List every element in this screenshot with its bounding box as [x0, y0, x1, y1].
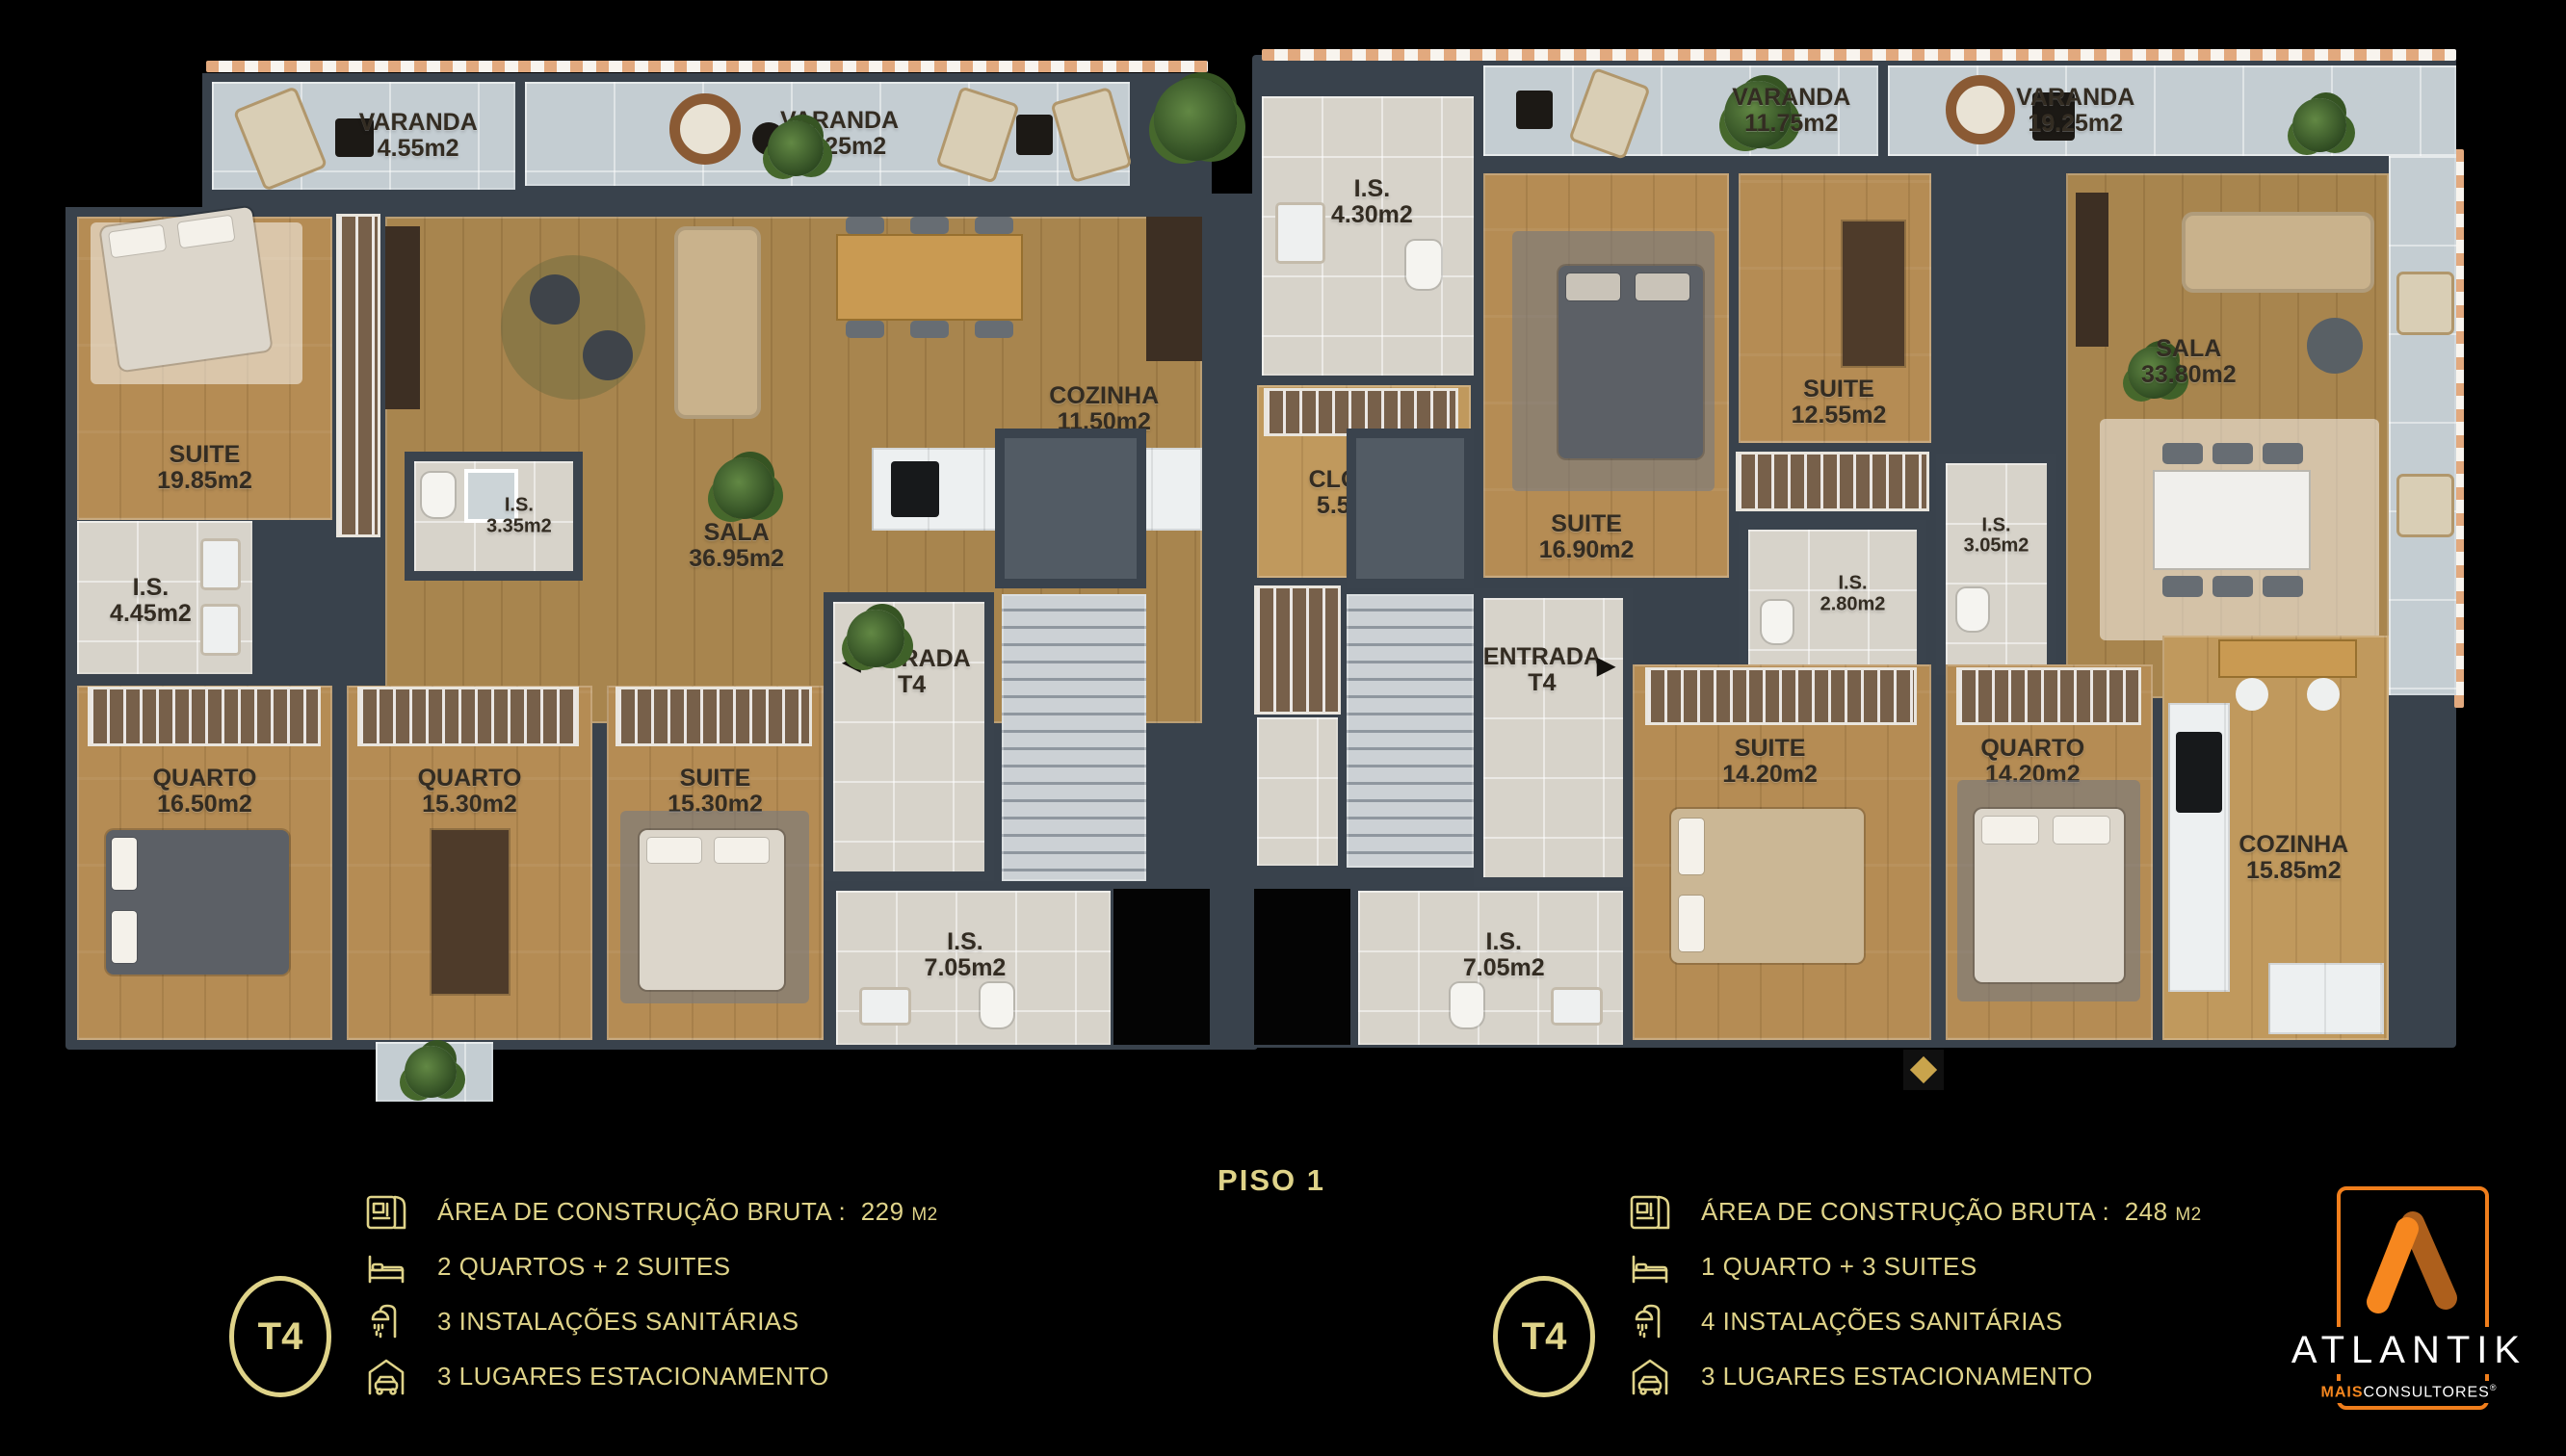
room-entrada-left: ◀ ENTRADA T4: [824, 592, 994, 881]
floorplan-image: VARANDA 4.55m2 VARANDA 11.25m2 SU: [0, 0, 2566, 1456]
tv-sideboard: [385, 226, 420, 409]
dining-chair: [2213, 443, 2253, 464]
room-area: 16.90m2: [1539, 537, 1635, 563]
room-is-280: I.S. 2.80m2: [1739, 520, 1926, 674]
room-quarto-1420: QUARTO 14.20m2: [1946, 664, 2153, 1040]
planter: [376, 1042, 493, 1102]
room-quarto-1530: QUARTO 15.30m2: [347, 686, 592, 1040]
pillow: [109, 225, 166, 258]
sink: [200, 538, 241, 590]
room-area: 2.80m2: [1820, 594, 1886, 615]
side-table: [1016, 115, 1053, 155]
dining-chair: [910, 217, 949, 234]
room-sala-3380: SALA 33.80m2: [2066, 173, 2389, 698]
legend-text: ÁREA DE CONSTRUÇÃO BRUTA :: [437, 1197, 846, 1226]
dining-table: [838, 236, 1021, 319]
room-cozinha-1585: COZINHA 15.85m2: [2162, 636, 2389, 1040]
room-label: I.S.: [1463, 929, 1545, 955]
room-label: SUITE: [1792, 377, 1887, 403]
room-area: 4.30m2: [1331, 202, 1413, 228]
legend-row: 3 LUGARES ESTACIONAMENTO: [360, 1349, 938, 1404]
dining-chair: [2263, 443, 2303, 464]
room-area: 3.35m2: [486, 516, 552, 537]
sun-lounger: [1050, 87, 1132, 183]
legend-text: 3 INSTALAÇÕES SANITÁRIAS: [437, 1307, 799, 1337]
closet-rack: [1267, 391, 1455, 433]
room-area: 19.85m2: [157, 468, 252, 494]
round-rug: [501, 255, 645, 400]
background-patch: [65, 49, 202, 207]
room-label: SUITE: [1722, 736, 1818, 762]
room-label: VARANDA: [359, 110, 478, 136]
plant: [2292, 98, 2346, 152]
room-area: 14.20m2: [1722, 762, 1818, 788]
desk: [432, 830, 509, 994]
dining-chair: [2213, 576, 2253, 597]
room-is-705-right: I.S. 7.05m2: [1358, 891, 1623, 1045]
registered-mark: ®: [2490, 1383, 2498, 1392]
legend-row: ÁREA DE CONSTRUÇÃO BRUTA : 248 M2: [1624, 1184, 2202, 1239]
dining-chair: [975, 321, 1013, 338]
legend-unit: M2: [911, 1205, 937, 1225]
room-label: QUARTO: [153, 766, 257, 792]
unit-badge-label: T4: [1522, 1315, 1567, 1359]
plant: [847, 610, 904, 667]
stair-void: [1254, 889, 1350, 1045]
room-suite-1985: SUITE 19.85m2: [77, 217, 332, 520]
closet-rack: [1739, 455, 1926, 508]
room-area: 11.75m2: [1732, 111, 1850, 137]
toilet: [1957, 588, 1988, 631]
tv-sideboard: [2076, 193, 2108, 347]
legend-text: 2 QUARTOS + 2 SUITES: [437, 1252, 731, 1282]
closet-rack: [618, 689, 809, 743]
kitchen-tall-cabinets: [1146, 217, 1202, 361]
stove: [2176, 732, 2222, 813]
legend-text: ÁREA DE CONSTRUÇÃO BRUTA :: [1701, 1197, 2109, 1226]
room-label: I.S.: [1820, 574, 1886, 595]
chair: [2307, 678, 2340, 711]
atlantik-logo: ATLANTIK MAISCONSULTORES®: [2319, 1181, 2499, 1412]
floor-title: PISO 1: [1218, 1163, 1325, 1198]
room-varanda-1925: VARANDA 19.25m2: [1888, 65, 2456, 156]
pillow: [715, 838, 769, 863]
toilet: [1762, 601, 1793, 643]
room-area: 33.80m2: [2141, 362, 2237, 388]
varanda-side-strip: [2389, 156, 2456, 695]
dining-chair: [846, 321, 884, 338]
bed: [640, 830, 784, 990]
pillow: [1679, 819, 1704, 874]
shower-icon: [360, 1296, 412, 1348]
blueprint-icon: [360, 1186, 412, 1238]
sink: [200, 604, 241, 656]
sink: [1551, 987, 1603, 1026]
sofa: [2182, 212, 2374, 293]
room-label: SALA: [689, 520, 784, 546]
plant: [405, 1046, 457, 1098]
armchair: [2307, 318, 2363, 374]
floor-plan: VARANDA 4.55m2 VARANDA 11.25m2 SU: [65, 49, 2462, 1050]
staircase: [1347, 594, 1474, 868]
bed-icon: [1624, 1241, 1676, 1293]
brand-name: ATLANTIK: [2284, 1327, 2534, 1374]
room-area: 4.45m2: [110, 601, 192, 627]
room-label: I.S.: [1331, 176, 1413, 202]
kitchen-island: [2168, 703, 2230, 992]
legend-text: 3 LUGARES ESTACIONAMENTO: [1701, 1362, 2093, 1391]
legend-row: ÁREA DE CONSTRUÇÃO BRUTA : 229 M2: [360, 1184, 938, 1239]
kitchen-table: [2220, 641, 2355, 676]
north-marker-icon: [1903, 1050, 1944, 1090]
dining-chair: [2263, 576, 2303, 597]
side-table: [1516, 91, 1553, 129]
room-label: I.S.: [486, 495, 552, 516]
room-label: VARANDA: [1732, 85, 1850, 111]
room-is-705-left: I.S. 7.05m2: [836, 891, 1111, 1045]
bed: [1671, 809, 1864, 963]
legend-row: 3 LUGARES ESTACIONAMENTO: [1624, 1349, 2202, 1404]
legend-row: 3 INSTALAÇÕES SANITÁRIAS: [360, 1294, 938, 1349]
room-label: I.S.: [925, 929, 1007, 955]
sofa: [674, 226, 761, 419]
elevator-shaft: [1347, 429, 1474, 588]
staircase: [1002, 594, 1146, 881]
room-area: 15.30m2: [418, 792, 522, 818]
pillow: [112, 911, 137, 963]
sun-lounger: [1568, 67, 1651, 160]
atlantik-a-mark-icon: [2351, 1194, 2467, 1329]
room-suite-1255: SUITE 12.55m2: [1739, 173, 1931, 443]
legend-value: 248: [2125, 1197, 2168, 1226]
room-varanda-1175: VARANDA 11.75m2: [1483, 65, 1878, 156]
wardrobe: [339, 217, 378, 534]
unit-badge-label: T4: [258, 1315, 303, 1359]
party-wall: [1206, 194, 1258, 1050]
room-area: 12.55m2: [1792, 403, 1887, 429]
toilet: [1451, 983, 1483, 1027]
room-label: SUITE: [157, 442, 252, 468]
room-is-305: I.S. 3.05m2: [1936, 454, 2056, 675]
room-label: SUITE: [1539, 511, 1635, 537]
brand-subtitle: MAISCONSULTORES®: [2314, 1381, 2505, 1403]
pillow: [1566, 273, 1620, 300]
room-is-445: I.S. 4.45m2: [77, 521, 252, 674]
legend-left: ÁREA DE CONSTRUÇÃO BRUTA : 229 M2 2 QUAR…: [360, 1184, 938, 1404]
blueprint-icon: [1624, 1186, 1676, 1238]
balcony-railing: [1262, 49, 2456, 61]
pillow: [1679, 896, 1704, 951]
room-unit: T4: [853, 672, 971, 698]
room-area: 36.95m2: [689, 546, 784, 572]
pillow: [2054, 817, 2109, 844]
hanging-chair: [1946, 75, 2015, 144]
chair: [2236, 678, 2268, 711]
legend-row: 2 QUARTOS + 2 SUITES: [360, 1239, 938, 1294]
room-label: SUITE: [668, 766, 763, 792]
legend-row: 4 INSTALAÇÕES SANITÁRIAS: [1624, 1294, 2202, 1349]
bed: [1975, 809, 2124, 982]
unit-badge-left: T4: [229, 1276, 331, 1397]
room-label: I.S.: [110, 575, 192, 601]
legend-value: 229: [861, 1197, 904, 1226]
closet-rack: [360, 689, 576, 743]
bed: [106, 830, 289, 975]
legend-text: 1 QUARTO + 3 SUITES: [1701, 1252, 1977, 1282]
toilet: [1406, 241, 1441, 289]
room-label: VARANDA: [2016, 85, 2134, 111]
shower-icon: [1624, 1296, 1676, 1348]
room-area: 19.25m2: [2016, 111, 2134, 137]
plant: [1154, 78, 1237, 161]
brand-sub-text: CONSULTORES: [2364, 1384, 2490, 1400]
closet-rack: [1959, 670, 2138, 722]
kitchen-counter: [2268, 963, 2384, 1034]
bed: [100, 207, 271, 372]
room-suite-1530: SUITE 15.30m2: [607, 686, 824, 1040]
room-unit: T4: [1483, 670, 1601, 696]
room-entrada-right: ENTRADA T4 ▶: [1474, 588, 1633, 887]
toilet: [422, 473, 455, 517]
room-varanda-455: VARANDA 4.55m2: [212, 82, 515, 190]
sink: [859, 987, 911, 1026]
room-label: ENTRADA: [1483, 644, 1601, 670]
legend-unit: M2: [2175, 1205, 2201, 1225]
room-is-335: I.S. 3.35m2: [405, 452, 583, 581]
room-area: 4.55m2: [359, 136, 478, 162]
pillow: [112, 838, 137, 890]
legend-text: 3 LUGARES ESTACIONAMENTO: [437, 1362, 829, 1391]
legend-right: ÁREA DE CONSTRUÇÃO BRUTA : 248 M2 1 QUAR…: [1624, 1184, 2202, 1404]
plant: [713, 457, 774, 519]
hallway: [1257, 717, 1338, 866]
dining-chair: [2162, 443, 2203, 464]
sink: [1275, 202, 1325, 264]
room-label: COZINHA: [2239, 832, 2348, 858]
room-label: SALA: [2141, 336, 2237, 362]
entrance-arrow-icon: ▶: [1597, 650, 1616, 680]
toilet: [981, 983, 1013, 1027]
room-varanda-1125: VARANDA 11.25m2: [525, 82, 1130, 186]
closet-rack: [1257, 588, 1338, 712]
elevator-shaft: [995, 429, 1146, 588]
legend-row: 1 QUARTO + 3 SUITES: [1624, 1239, 2202, 1294]
room-area: 7.05m2: [925, 955, 1007, 981]
room-area: 16.50m2: [153, 792, 257, 818]
armchair: [583, 330, 633, 380]
plant: [768, 120, 824, 176]
legend-text: 4 INSTALAÇÕES SANITÁRIAS: [1701, 1307, 2063, 1337]
closet-rack: [1648, 670, 1914, 722]
stair-void: [1113, 889, 1210, 1045]
brand-sub-bold: MAIS: [2321, 1384, 2364, 1400]
closet-rack: [91, 689, 318, 743]
dining-chair: [975, 217, 1013, 234]
desk: [1843, 221, 1904, 366]
stove: [891, 461, 939, 517]
bed: [1558, 266, 1703, 458]
pillow: [1982, 817, 2038, 844]
hanging-chair: [669, 93, 741, 165]
dining-chair: [910, 321, 949, 338]
dining-chair: [2162, 576, 2203, 597]
room-area: 7.05m2: [1463, 955, 1545, 981]
dining-table: [2155, 472, 2309, 568]
unit-badge-right: T4: [1493, 1276, 1595, 1397]
armchair: [2396, 272, 2454, 335]
room-area: 3.05m2: [1964, 536, 2029, 558]
room-label: QUARTO: [418, 766, 522, 792]
bed-icon: [360, 1241, 412, 1293]
room-suite-1690: SUITE 16.90m2: [1483, 173, 1729, 578]
armchair: [2396, 474, 2454, 537]
dining-chair: [846, 217, 884, 234]
room-quarto-1650: QUARTO 16.50m2: [77, 686, 332, 1040]
garage-icon: [1624, 1351, 1676, 1403]
room-is-430: I.S. 4.30m2: [1262, 96, 1474, 376]
pillow: [647, 838, 701, 863]
sun-lounger: [935, 86, 1019, 184]
room-area: 15.85m2: [2239, 858, 2348, 884]
pillow: [177, 216, 234, 248]
room-label: QUARTO: [1980, 736, 2084, 762]
room-label: COZINHA: [1049, 383, 1159, 409]
room-label: I.S.: [1964, 515, 2029, 536]
room-suite-1420: SUITE 14.20m2: [1633, 664, 1931, 1040]
balcony-railing: [206, 61, 1208, 72]
sun-lounger: [233, 86, 328, 192]
pillow: [1636, 273, 1689, 300]
garage-icon: [360, 1351, 412, 1403]
armchair: [530, 274, 580, 325]
